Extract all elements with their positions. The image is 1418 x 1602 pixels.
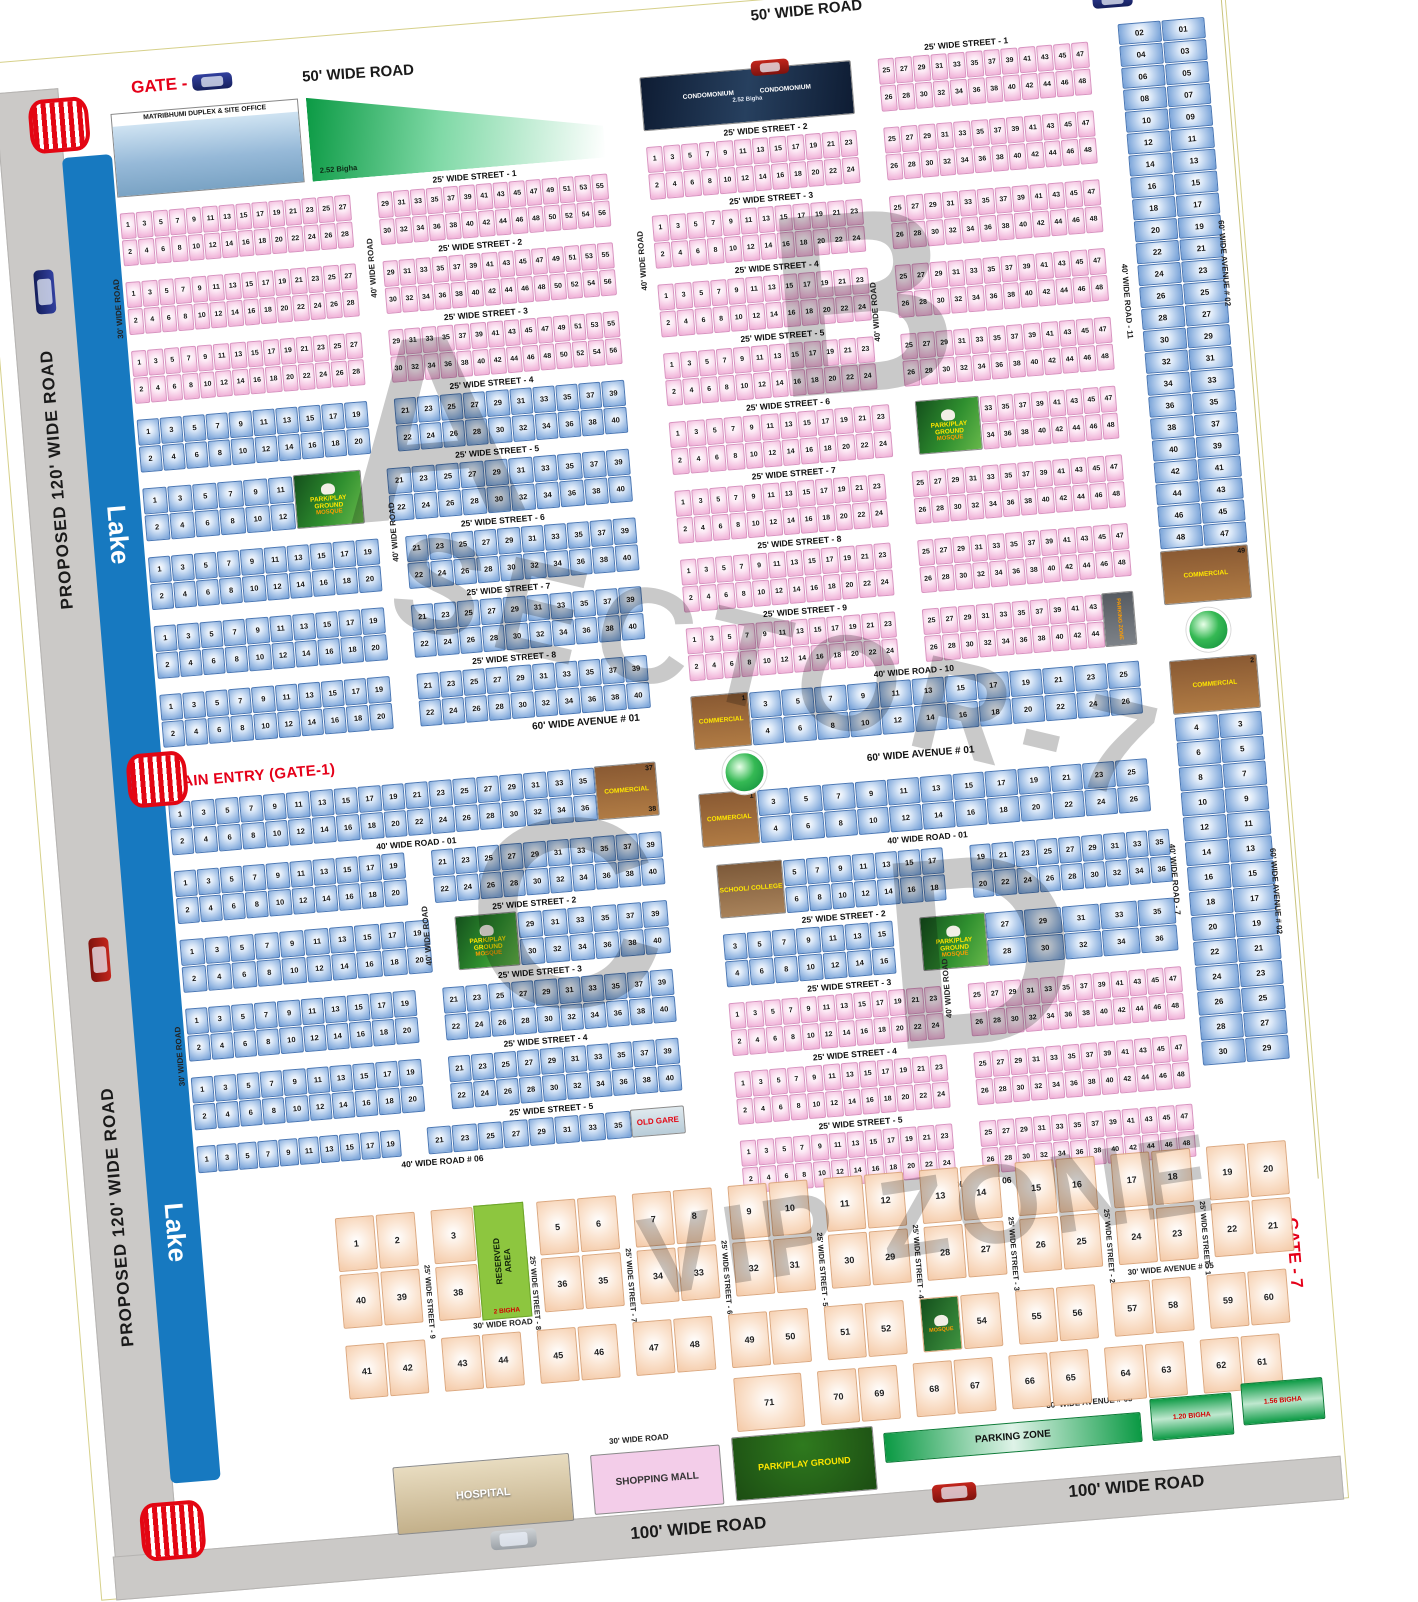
plot-cell[interactable]: 18 [360,881,384,909]
plot-cell[interactable]: 28 [931,495,950,522]
plot-cell[interactable]: 20 [806,159,825,186]
plot-cell[interactable]: 47 [1169,1034,1188,1061]
plot-cell[interactable]: 28 [936,564,955,591]
plot-cell[interactable]: 08 [1122,86,1167,110]
plot-cell[interactable]: 8 [262,1097,286,1125]
plot-cell[interactable]: 14 [843,1088,862,1115]
plot-cell[interactable]: 11 [202,205,220,232]
plot-cell[interactable]: 3 [176,622,200,650]
plot-cell[interactable]: 13 [218,204,236,231]
plot-cell[interactable]: 7 [710,279,729,306]
plot-cell[interactable]: 7 [260,1070,284,1098]
plot-cell[interactable]: 46 [1061,138,1080,165]
plot-cell[interactable]: 27 [345,332,363,359]
plot-cell[interactable]: 15 [246,340,264,367]
plot-cell[interactable]: 6 [222,892,246,920]
plot-cell[interactable]: 43 [1139,1106,1158,1133]
plot-cell[interactable]: 36 [1007,558,1026,585]
plot-cell[interactable]: 7 [698,141,717,168]
plot-cell[interactable]: 33 [569,836,593,864]
plot-cell[interactable]: 50 [549,273,567,300]
plot-cell[interactable]: 1 [668,420,688,447]
plot-cell[interactable]: 21 [1251,1197,1294,1254]
plot-cell[interactable]: 15 [944,673,978,702]
plot-cell[interactable]: 23 [301,197,319,224]
plot-cell[interactable]: 18 [254,228,272,255]
plot-cell[interactable]: 10 [768,1179,811,1236]
plot-cell[interactable]: 43 [492,181,510,208]
plot-cell[interactable]: 43 [1036,44,1055,71]
plot-cell[interactable]: 48 [1096,343,1115,370]
plot-cell[interactable]: 56 [605,337,623,364]
plot-cell[interactable]: 42 [478,209,496,236]
plot-cell[interactable]: 6 [166,374,184,401]
plot-cell[interactable]: 2 [376,1212,419,1269]
plot-cell[interactable]: 32 [1023,1004,1042,1031]
plot-cell[interactable]: 42 [1153,459,1198,483]
plot-cell[interactable]: 28 [513,1007,537,1035]
plot-cell[interactable]: 37 [595,588,619,616]
plot-cell[interactable]: 10 [758,648,777,675]
plot-cell[interactable]: 36 [594,861,618,889]
plot-cell[interactable]: 19 [888,988,907,1015]
plot-cell[interactable]: 1 [335,1215,378,1272]
plot-cell[interactable]: 23 [871,404,891,431]
plot-cell[interactable]: 24 [314,361,332,388]
plot-cell[interactable]: 47 [1110,523,1129,550]
plot-cell[interactable]: 19 [834,407,854,434]
plot-cell[interactable]: 9 [750,552,769,579]
plot-cell[interactable]: 20 [834,503,853,530]
plot-cell[interactable]: 14 [787,576,806,603]
plot-cell[interactable]: 36 [541,1255,584,1312]
plot-cell[interactable]: 35 [971,119,990,146]
plot-cell[interactable]: 10 [1180,789,1225,816]
plot-cell[interactable]: 6 [749,957,775,985]
plot-cell[interactable]: 5 [720,624,739,651]
plot-cell[interactable]: 4 [144,306,162,333]
plot-cell[interactable]: 40 [621,613,645,641]
plot-cell[interactable]: 7 [632,1191,675,1248]
plot-cell[interactable]: 16 [243,298,261,325]
plot-cell[interactable]: 20 [1190,913,1235,940]
plot-cell[interactable]: 48 [527,205,545,232]
plot-cell[interactable]: 7 [180,345,198,372]
plot-cell[interactable]: 32 [932,80,951,107]
plot-cell[interactable]: 41 [1066,595,1085,622]
plot-cell[interactable]: 40 [1036,486,1055,513]
plot-cell[interactable]: 32 [406,354,424,381]
plot-cell[interactable]: 2 [670,447,690,474]
plot-cell[interactable]: 46 [511,207,529,234]
plot-cell[interactable]: 1 [136,418,160,446]
plot-cell[interactable]: 2 [138,444,162,472]
plot-cell[interactable]: 7 [822,782,856,811]
plot-cell[interactable]: 20 [346,427,370,455]
plot-cell[interactable]: 44 [1077,552,1096,579]
plot-cell[interactable]: 24 [1016,866,1039,894]
plot-cell[interactable]: 69 [858,1365,901,1422]
plot-cell[interactable]: 35 [1062,1043,1081,1070]
plot-cell[interactable]: 33 [1045,1045,1064,1072]
plot-cell[interactable]: 8 [726,443,746,470]
plot-cell[interactable]: 37 [1000,255,1019,282]
plot-cell[interactable]: 34 [1146,371,1191,395]
plot-cell[interactable]: 8 [729,512,748,539]
plot-cell[interactable]: 21 [447,1054,471,1082]
plot-cell[interactable]: 4 [1174,714,1219,741]
plot-cell[interactable]: 3 [430,1207,476,1264]
plot-cell[interactable]: 12 [736,165,755,192]
plot-cell[interactable]: 9 [716,140,735,167]
plot-cell[interactable]: 10 [253,712,277,740]
plot-cell[interactable]: 17 [370,991,394,1019]
plot-cell[interactable]: 52 [864,1300,907,1357]
plot-cell[interactable]: 65 [1049,1349,1092,1406]
plot-cell[interactable]: 21 [856,543,875,570]
plot-cell[interactable]: 22 [1052,790,1086,819]
plot-cell[interactable]: 18 [817,505,836,532]
plot-cell[interactable]: 4 [682,377,701,404]
plot-cell[interactable]: 39 [1023,322,1042,349]
plot-cell[interactable]: 04 [1119,42,1164,66]
plot-cell[interactable]: 19 [1017,766,1051,795]
plot-cell[interactable]: 3 [722,932,748,960]
plot-cell[interactable]: 18 [1188,888,1233,915]
plot-cell[interactable]: 7 [715,347,734,374]
plot-cell[interactable]: 33 [981,464,1000,491]
plot-cell[interactable]: 37 [1193,411,1238,435]
plot-cell[interactable]: 24 [841,156,860,183]
plot-cell[interactable]: 19 [804,132,823,159]
plot-cell[interactable]: 30 [937,356,956,383]
plot-cell[interactable]: 2 [659,310,678,337]
plot-cell[interactable]: 36 [580,685,604,713]
plot-cell[interactable]: 12 [764,509,783,536]
plot-cell[interactable]: 38 [619,929,645,957]
plot-cell[interactable]: 22 [1210,1200,1253,1257]
plot-cell[interactable]: 25 [1115,758,1149,787]
plot-cell[interactable]: 24 [932,1081,951,1108]
plot-cell[interactable]: 38 [629,997,653,1025]
plot-cell[interactable]: 22 [1192,938,1237,965]
plot-cell[interactable]: 24 [1084,787,1118,816]
plot-cell[interactable]: 17 [815,478,834,505]
plot-cell[interactable]: 24 [413,491,438,519]
plot-cell[interactable]: 25 [494,1050,518,1078]
plot-cell[interactable]: 34 [412,215,430,242]
plot-cell[interactable]: 48 [1073,68,1092,95]
plot-cell[interactable]: 51 [824,1303,867,1360]
plot-cell[interactable]: 32 [732,1240,775,1297]
plot-cell[interactable]: 21 [442,985,466,1013]
plot-cell[interactable]: 23 [1074,663,1108,692]
plot-cell[interactable]: 19 [356,538,380,566]
plot-cell[interactable]: 9 [744,483,763,510]
plot-cell[interactable]: 20 [823,366,842,393]
plot-cell[interactable]: 20 [812,228,831,255]
plot-cell[interactable]: 5 [681,142,700,169]
plot-cell[interactable]: 37 [442,185,460,212]
plot-cell[interactable]: 18 [922,874,946,902]
plot-cell[interactable]: 40 [1095,998,1114,1025]
plot-cell[interactable]: 23 [453,846,477,874]
plot-cell[interactable]: 16 [860,1087,879,1114]
plot-cell[interactable]: 39 [1098,1040,1117,1067]
plot-cell[interactable]: 38 [1008,350,1027,377]
plot-cell[interactable]: 34 [1102,927,1141,956]
plot-cell[interactable]: 15 [786,342,805,369]
plot-cell[interactable]: 6 [185,441,209,469]
plot-cell[interactable]: 27 [895,56,914,83]
plot-cell[interactable]: 12 [210,301,228,328]
plot-cell[interactable]: 22 [863,639,882,666]
plot-cell[interactable]: 7 [254,1001,278,1029]
plot-cell[interactable]: 1 [190,1075,214,1103]
plot-cell[interactable]: 9 [796,926,822,954]
plot-cell[interactable]: 4 [138,237,156,264]
plot-cell[interactable]: 13 [779,481,798,508]
plot-cell[interactable]: 10 [831,881,855,909]
plot-cell[interactable]: 35 [1005,531,1024,558]
plot-cell[interactable]: 19 [900,1126,919,1153]
plot-cell[interactable]: 33 [1190,367,1235,391]
plot-cell[interactable]: 47 [1088,247,1107,274]
plot-cell[interactable]: 1 [179,938,205,966]
plot-cell[interactable]: 38 [996,213,1015,240]
plot-cell[interactable]: 31 [508,456,533,484]
plot-cell[interactable]: 4 [184,718,208,746]
plot-cell[interactable]: 35 [1138,897,1177,926]
plot-cell[interactable]: 40 [472,348,490,375]
plot-cell[interactable]: 6 [707,444,727,471]
plot-cell[interactable]: 32 [525,798,550,826]
plot-cell[interactable]: 7 [254,931,280,959]
plot-cell[interactable]: 4 [178,649,202,677]
plot-cell[interactable]: 36 [990,352,1009,379]
plot-cell[interactable]: 16 [337,883,361,911]
plot-cell[interactable]: 26 [1019,1216,1062,1273]
plot-cell[interactable]: 44 [1060,346,1079,373]
plot-cell[interactable]: 28 [988,936,1027,965]
plot-cell[interactable]: 48 [673,1316,716,1373]
plot-cell[interactable]: 13 [835,993,854,1020]
plot-cell[interactable]: 31 [941,190,960,217]
plot-cell[interactable]: 25 [973,1051,992,1078]
plot-cell[interactable]: 17 [920,847,944,875]
plot-cell[interactable]: 60 [1247,1269,1290,1326]
plot-cell[interactable]: 15 [780,273,799,300]
plot-cell[interactable]: 38 [456,350,474,377]
plot-cell[interactable]: 8 [256,1028,280,1056]
plot-cell[interactable]: 31 [542,908,568,936]
plot-cell[interactable]: 41 [1197,455,1242,479]
plot-cell[interactable]: 03 [1163,38,1208,62]
plot-cell[interactable]: 32 [978,630,997,657]
plot-cell[interactable]: 34 [569,933,595,961]
plot-cell[interactable]: 27 [460,460,485,488]
plot-cell[interactable]: 13 [840,1061,859,1088]
plot-cell[interactable]: 13 [275,406,299,434]
plot-cell[interactable]: 20 [890,1015,909,1042]
plot-cell[interactable]: 23 [873,542,892,569]
plot-cell[interactable]: 59 [1206,1272,1249,1329]
plot-cell[interactable]: 47 [525,178,543,205]
plot-cell[interactable]: 32 [534,689,558,717]
plot-cell[interactable]: 21 [861,612,880,639]
plot-cell[interactable]: 18 [806,367,825,394]
plot-cell[interactable]: 30 [914,81,933,108]
plot-cell[interactable]: 29 [912,54,931,81]
plot-cell[interactable]: 11 [269,614,293,642]
plot-cell[interactable]: 40 [1003,74,1022,101]
plot-cell[interactable]: 40 [615,544,639,572]
plot-cell[interactable]: 39 [618,586,642,614]
plot-cell[interactable]: 45 [1059,111,1078,138]
plot-cell[interactable]: 27 [480,597,504,625]
plot-cell[interactable]: 46 [1078,345,1097,372]
plot-cell[interactable]: 5 [194,551,218,579]
plot-cell[interactable]: 14 [294,639,318,667]
plot-cell[interactable]: 7 [771,928,797,956]
plot-cell[interactable]: 20 [384,879,408,907]
plot-cell[interactable]: 9 [278,1138,300,1167]
plot-cell[interactable]: 16 [788,368,807,395]
plot-cell[interactable]: 7 [787,1066,806,1093]
plot-cell[interactable]: 37 [601,656,625,684]
plot-cell[interactable]: 33 [532,385,556,413]
plot-cell[interactable]: 33 [970,326,989,353]
plot-cell[interactable]: 1 [119,212,137,239]
plot-cell[interactable]: 45 [1146,967,1165,994]
plot-cell[interactable]: 1 [674,489,693,516]
plot-cell[interactable]: 24 [1115,1208,1158,1265]
plot-cell[interactable]: 22 [418,698,442,726]
plot-cell[interactable]: 29 [382,259,400,286]
plot-cell[interactable]: 4 [699,583,718,610]
plot-cell[interactable]: 8 [208,439,232,467]
plot-cell[interactable]: 3 [208,1005,232,1033]
plot-cell[interactable]: 47 [1071,41,1090,68]
plot-cell[interactable]: 17 [338,609,362,637]
plot-cell[interactable]: 47 [1105,454,1124,481]
plot-cell[interactable]: 15 [235,202,253,229]
plot-cell[interactable]: 23 [439,670,463,698]
plot-cell[interactable]: 46 [1154,1063,1173,1090]
plot-cell[interactable]: 6 [722,651,741,678]
plot-cell[interactable]: 22 [444,1012,468,1040]
plot-cell[interactable]: 37 [983,48,1002,75]
plot-cell[interactable]: 44 [1136,1064,1155,1091]
plot-cell[interactable]: 3 [691,488,710,515]
plot-cell[interactable]: 11 [851,852,875,880]
plot-cell[interactable]: 44 [505,346,523,373]
plot-cell[interactable]: 30 [1026,933,1065,962]
plot-cell[interactable]: 43 [1084,594,1103,621]
plot-cell[interactable]: 3 [674,281,693,308]
plot-cell[interactable]: 28 [462,487,487,515]
plot-cell[interactable]: 22 [824,158,843,185]
plot-cell[interactable]: 28 [347,359,365,386]
plot-cell[interactable]: 21 [912,1056,931,1083]
plot-cell[interactable]: 41 [475,183,493,210]
plot-cell[interactable]: 26 [1117,785,1151,814]
plot-cell[interactable]: 42 [1043,347,1062,374]
plot-cell[interactable]: 29 [499,773,524,801]
plot-cell[interactable]: 23 [428,532,452,560]
plot-cell[interactable]: 14 [770,370,789,397]
plot-cell[interactable]: 33 [979,395,997,422]
plot-cell[interactable]: 66 [1008,1352,1051,1409]
plot-cell[interactable]: 15 [769,135,788,162]
plot-cell[interactable]: 41 [1052,458,1071,485]
plot-cell[interactable]: 18 [335,567,359,595]
plot-cell[interactable]: 35 [592,835,616,863]
plot-cell[interactable]: 4 [173,580,197,608]
plot-cell[interactable]: 14 [782,507,801,534]
plot-cell[interactable]: 6 [771,1094,790,1121]
plot-cell[interactable]: 30 [954,562,973,589]
plot-cell[interactable]: 2 [730,1028,749,1055]
plot-cell[interactable]: 27 [503,1119,530,1148]
plot-cell[interactable]: 5 [747,930,773,958]
plot-cell[interactable]: 7 [1222,760,1267,787]
plot-cell[interactable]: 47 [1076,110,1095,137]
plot-cell[interactable]: 43 [1052,250,1071,277]
plot-cell[interactable]: 10 [245,505,271,533]
plot-cell[interactable]: 26 [885,153,904,180]
plot-cell[interactable]: 71 [733,1373,805,1432]
plot-cell[interactable]: 20 [358,565,382,593]
plot-cell[interactable]: 29 [497,526,521,554]
plot-cell[interactable]: 3 [136,210,154,237]
plot-cell[interactable]: 45 [514,249,532,276]
plot-cell[interactable]: 34 [535,481,560,509]
plot-cell[interactable]: 26 [970,1009,989,1036]
plot-cell[interactable]: 37 [1030,598,1049,625]
plot-cell[interactable]: 30 [1201,1038,1246,1065]
plot-cell[interactable]: 10 [265,819,290,847]
plot-cell[interactable]: 33 [533,454,558,482]
plot-cell[interactable]: 30 [948,494,967,521]
plot-cell[interactable]: 18 [346,704,370,732]
plot-cell[interactable]: 9 [185,206,203,233]
plot-cell[interactable]: 38 [1024,557,1043,584]
plot-cell[interactable]: 31 [526,593,550,621]
plot-cell[interactable]: 7 [228,687,252,715]
plot-cell[interactable]: 19 [1009,668,1043,697]
plot-cell[interactable]: 33 [421,325,439,352]
plot-cell[interactable]: 41 [345,1343,388,1400]
plot-cell[interactable]: 36 [569,548,593,576]
plot-cell[interactable]: 39 [638,831,662,859]
plot-cell[interactable]: 29 [929,260,948,287]
plot-cell[interactable]: 36 [428,213,446,240]
plot-cell[interactable]: 25 [439,393,463,421]
plot-cell[interactable]: 3 [141,279,159,306]
plot-cell[interactable]: 29 [1244,1034,1289,1061]
plot-cell[interactable]: 46 [1072,276,1091,303]
plot-cell[interactable]: 7 [169,208,187,235]
plot-cell[interactable]: 21 [853,405,873,432]
plot-cell[interactable]: 24 [881,638,900,665]
plot-cell[interactable]: 20 [818,297,837,324]
plot-cell[interactable]: 10 [746,510,765,537]
plot-cell[interactable]: 23 [839,129,858,156]
plot-cell[interactable]: 39 [1000,47,1019,74]
plot-cell[interactable]: 31 [557,976,581,1004]
plot-cell[interactable]: 39 [650,968,674,996]
